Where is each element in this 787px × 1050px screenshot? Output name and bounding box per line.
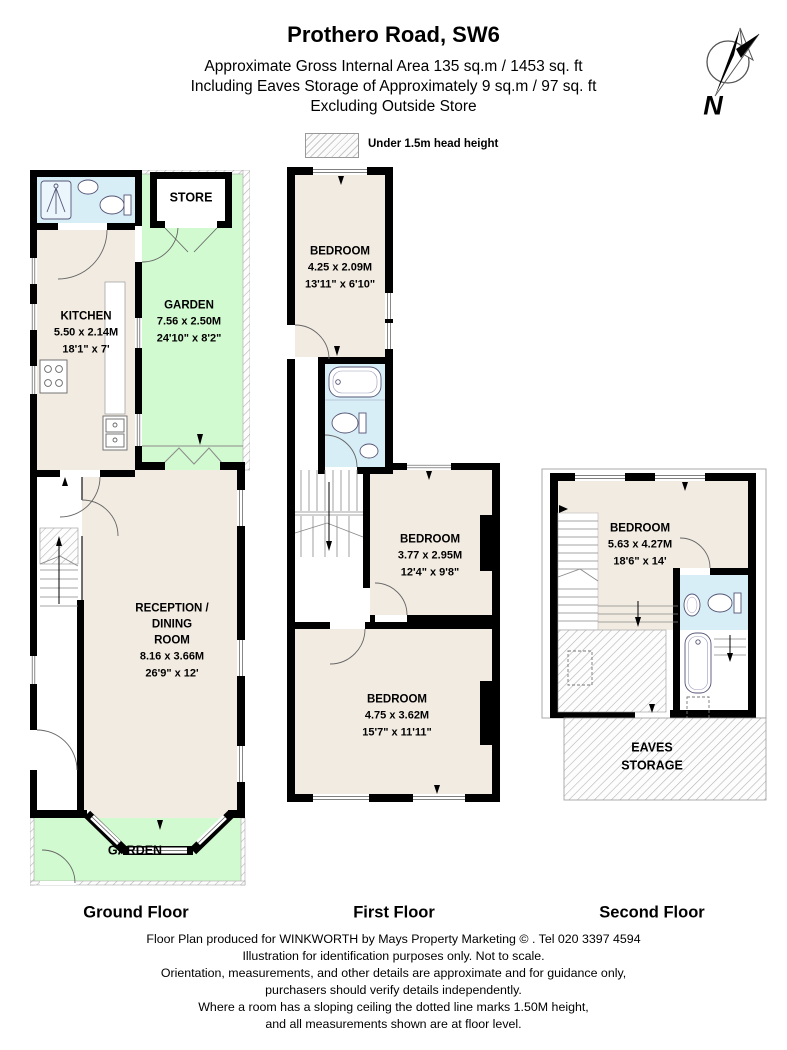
hob-icon [40,360,67,393]
header: Prothero Road, SW6 Approximate Gross Int… [0,22,787,117]
ff-sink-icon [360,444,378,458]
gf-sink-icon [78,180,98,194]
page-title: Prothero Road, SW6 [0,22,787,48]
floor-label-ground: Ground Floor [83,904,188,923]
area-line-3: Excluding Outside Store [0,97,787,117]
ff-bath-icon [329,367,381,397]
floor-label-second: Second Floor [599,904,704,923]
sf-toilet-icon [708,593,741,613]
north-label: N [703,91,723,122]
footer-line: Floor Plan produced for WINKWORTH by May… [0,931,787,948]
floor-label-first: First Floor [353,904,435,923]
gf-stairs-icon [40,528,78,606]
room-label-store: STORE [170,189,213,207]
head-height-hatch-swatch [305,133,359,158]
room-label-garden-rear: GARDEN 7.56 x 2.50M 24'10" x 8'2" [157,297,222,346]
footer-line: Orientation, measurements, and other det… [0,965,787,982]
room-label-ff-bedroom2: BEDROOM 3.77 x 2.95M 12'4" x 9'8" [398,531,462,580]
sf-sink-icon [684,594,700,616]
room-label-ff-bedroom3: BEDROOM 4.75 x 3.62M 15'7" x 11'11" [362,691,432,740]
footer-line: purchasers should verify details indepen… [0,982,787,999]
sf-bath-icon [685,633,711,693]
area-line-2: Including Eaves Storage of Approximately… [0,77,787,97]
room-label-sf-bedroom: BEDROOM 5.63 x 4.27M 18'6" x 14' [608,520,672,569]
shower-icon [41,181,71,219]
footer-line: Illustration for identification purposes… [0,948,787,965]
area-line-1: Approximate Gross Internal Area 135 sq.m… [0,57,787,77]
legend-label: Under 1.5m head height [368,138,498,150]
sf-low-headroom-area [558,630,666,712]
floorplan-page: Prothero Road, SW6 Approximate Gross Int… [0,0,787,1050]
sf-stairs-icon [558,513,598,630]
footer-line: Where a room has a sloping ceiling the d… [0,999,787,1016]
room-label-eaves-storage: EAVES STORAGE [621,740,683,775]
ff-toilet-icon [332,413,366,433]
ff-stairs-icon [295,470,363,557]
room-label-garden-front: GARDEN [108,842,162,860]
gf-toilet-icon [100,195,131,215]
kitchen-sink-icon [103,416,127,450]
footer-disclaimer: Floor Plan produced for WINKWORTH by May… [0,931,787,1033]
room-label-reception: RECEPTION / DINING ROOM 8.16 x 3.66M 26'… [135,600,208,681]
footer-line: and all measurements shown are at floor … [0,1016,787,1033]
room-label-kitchen: KITCHEN 5.50 x 2.14M 18'1" x 7' [54,308,118,357]
room-label-ff-bedroom1: BEDROOM 4.25 x 2.09M 13'11" x 6'10" [305,243,375,292]
ground-floor-plan [30,170,250,888]
